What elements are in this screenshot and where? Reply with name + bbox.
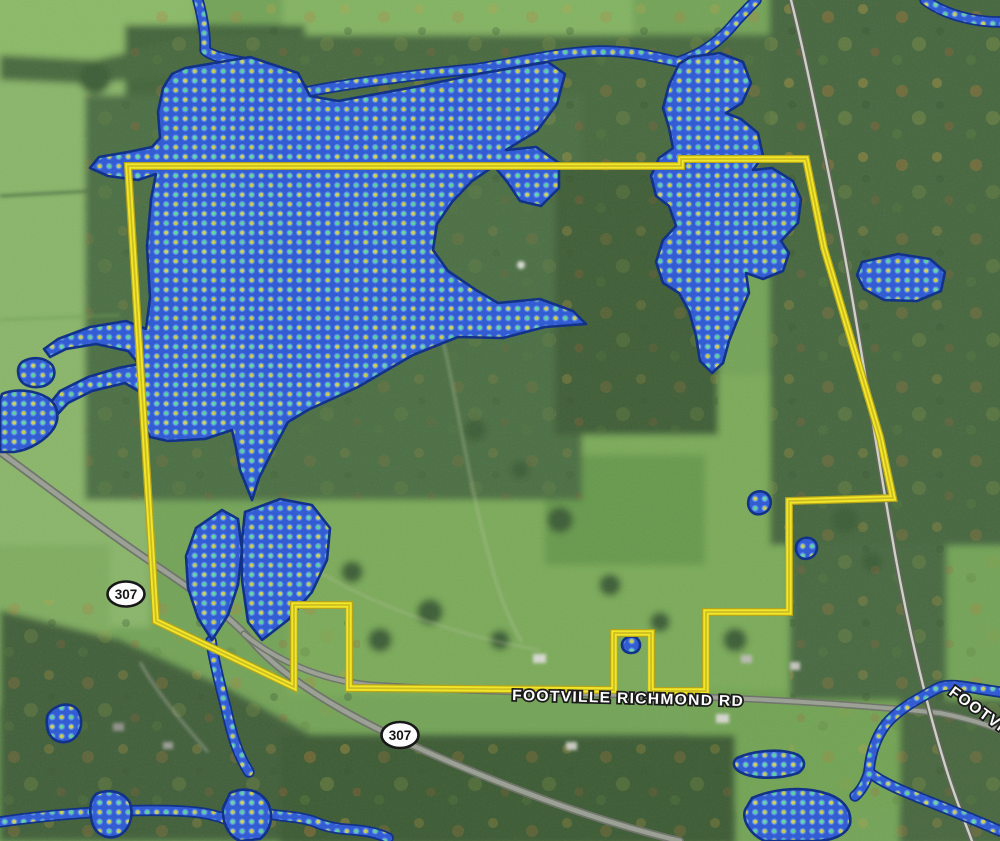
route-shield-307-west-label: 307 xyxy=(115,587,138,602)
satellite-map[interactable]: FOOTVILLE RICHMOND RD FOOTVI 307 307 xyxy=(0,0,1000,841)
route-shield-307-west: 307 xyxy=(108,582,145,607)
route-shield-307-south-label: 307 xyxy=(389,728,412,743)
map-canvas[interactable]: FOOTVILLE RICHMOND RD FOOTVI 307 307 xyxy=(0,0,1000,841)
route-shield-307-south: 307 xyxy=(382,722,419,748)
